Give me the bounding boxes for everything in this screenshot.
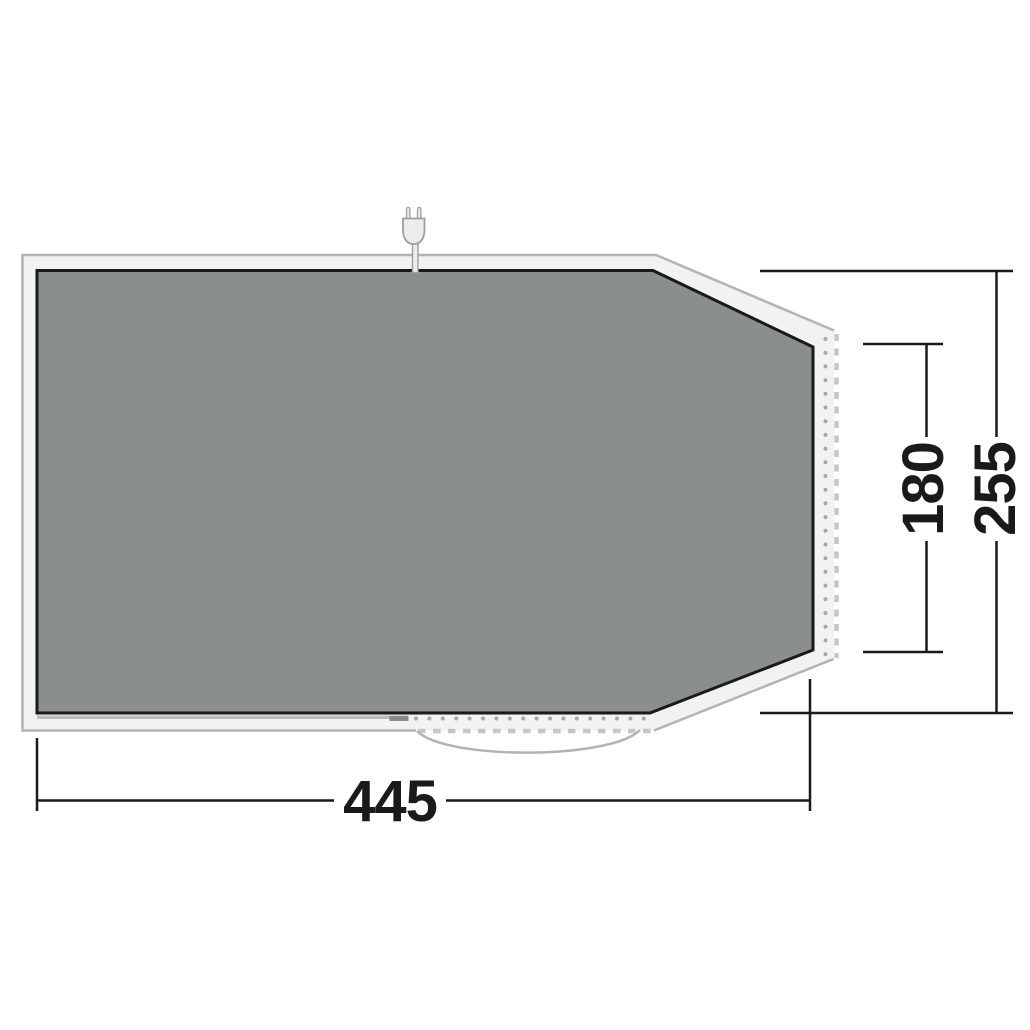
tent-floor: [37, 271, 813, 714]
floorplan-svg: 445 180 255: [0, 0, 1030, 1030]
plug-body: [403, 219, 425, 245]
door-zip-marker: [390, 716, 409, 721]
bottom-edge-shading: [37, 716, 408, 720]
plug-cable: [413, 243, 419, 273]
door-flap-arc: [417, 730, 640, 753]
dimension-label-right-total-depth: 255: [963, 442, 1028, 536]
floorplan-diagram: 445 180 255: [0, 0, 1030, 1030]
dimension-label-right-inner-depth: 180: [891, 442, 956, 536]
dimension-label-bottom-width: 445: [343, 769, 437, 834]
